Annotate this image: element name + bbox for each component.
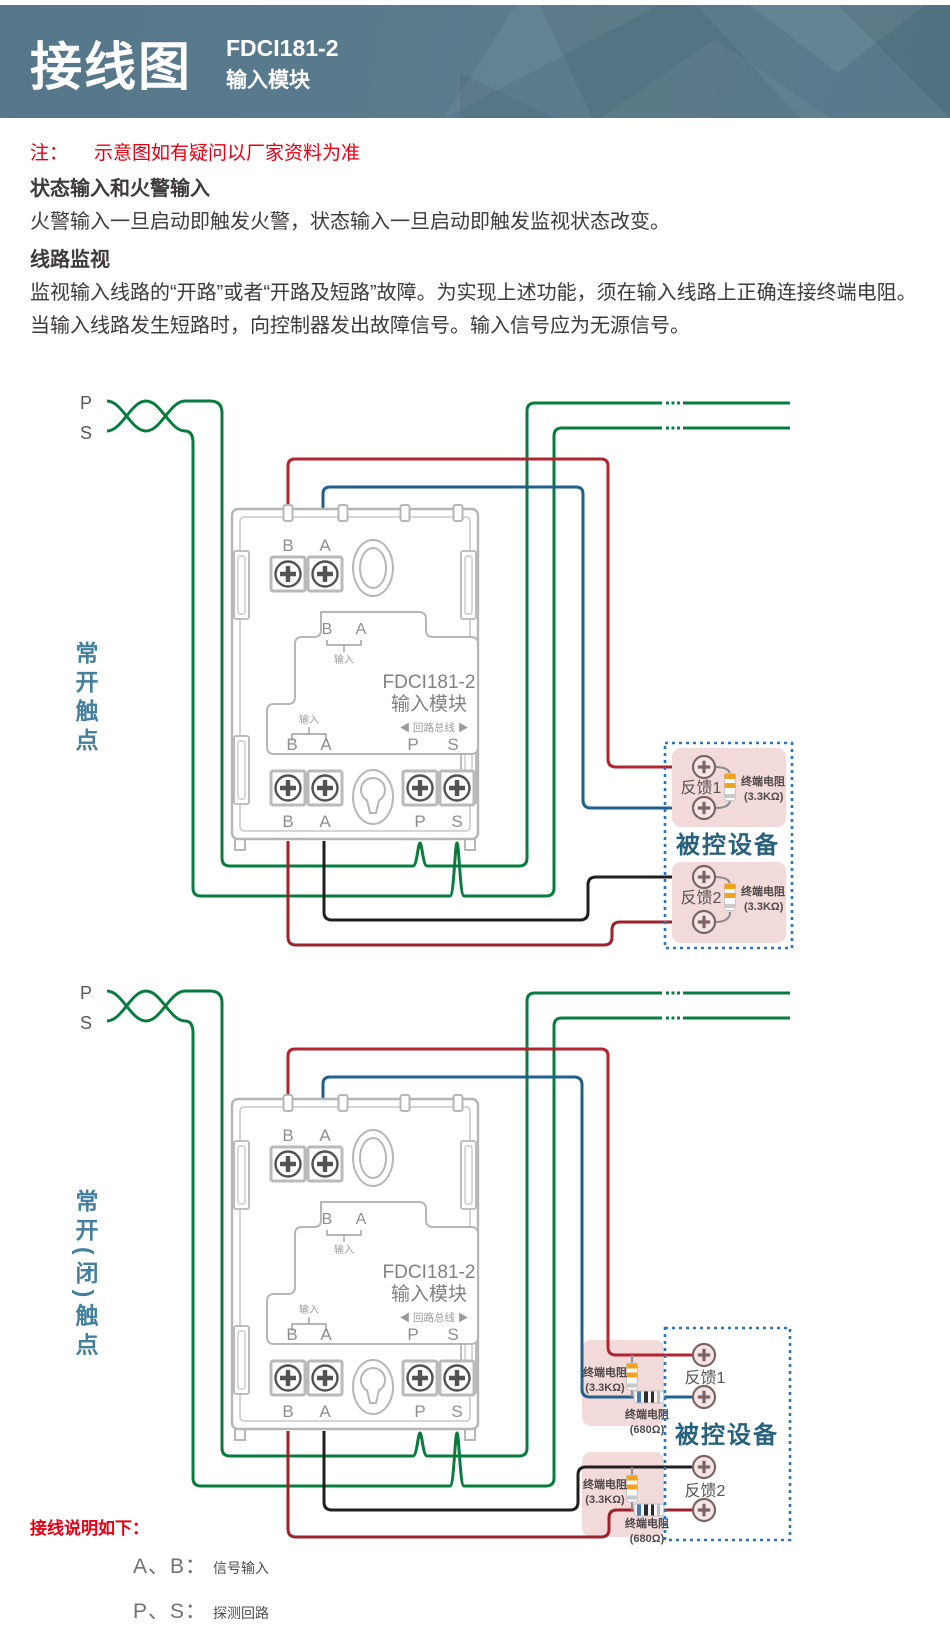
note-line: 注：示意图如有疑问以厂家资料为准 [30, 138, 360, 165]
note-text: 示意图如有疑问以厂家资料为准 [94, 143, 360, 164]
legend-title: 接线说明如下： [30, 1514, 149, 1539]
terminal-resistor-680-icon [634, 1504, 664, 1516]
controlled-device-title: 被控设备 [675, 1421, 779, 1449]
section-heading-2: 线路监视 [30, 243, 110, 272]
legend-term-ab: A、B： [133, 1555, 207, 1578]
resistor-label: 终端电阻 [741, 774, 785, 788]
feedback1-label: 反馈1 [685, 1369, 726, 1387]
wire-black-a-to-fb2 [324, 841, 692, 920]
page: 接线图 FDCI181-2 输入模块 注：示意图如有疑问以厂家资料为准 状态输入… [0, 0, 950, 1629]
feedback1-label: 反馈1 [681, 779, 722, 797]
resistor-value: (3.3KΩ) [585, 1382, 625, 1394]
fb1-terminal-bottom [693, 797, 715, 819]
feedback2-label: 反馈2 [681, 889, 722, 907]
terminal-resistor-680-icon [634, 1391, 664, 1403]
product-model: FDCI181-2 [226, 35, 338, 62]
fb2-terminal-top [693, 1456, 715, 1478]
wiring-diagram-canvas: B A B A P S B A 输入 FDCI181-2 输入模块 输入 B A… [0, 380, 950, 1629]
fb2-terminal-bottom [693, 911, 715, 933]
terminal-resistor-icon [627, 1363, 638, 1390]
legend-term-ps: P、S： [133, 1600, 207, 1623]
wire-maroon-b-to-fb2 [288, 841, 692, 945]
fb2-terminal-bottom [693, 1499, 715, 1521]
header-banner: 接线图 FDCI181-2 输入模块 [0, 5, 950, 118]
paragraph-1: 火警输入一旦启动即触发火警，状态输入一旦启动即触发监视状态改变。 [30, 206, 928, 239]
fb2-terminal-top [693, 866, 715, 888]
fb1-terminal-top [693, 1344, 715, 1366]
resistor-label: 终端电阻 [625, 1516, 669, 1530]
controlled-device-box-2: 反馈1 反馈2 被控设备 [665, 1328, 790, 1540]
resistor-value: (3.3KΩ) [744, 791, 784, 803]
paragraph-2: 监视输入线路的“开路”或者“开路及短路”故障。为实现上述功能，须在输入线路上正确… [30, 277, 928, 343]
note-label: 注： [30, 143, 68, 164]
legend-item-ab: A、B：信号输入 [133, 1550, 269, 1580]
fb1-terminal-bottom [693, 1386, 715, 1408]
legend-desc-ps: 探测回路 [213, 1605, 269, 1621]
resistor-value: (680Ω) [630, 1533, 665, 1545]
controlled-device-box-1: 反馈1 反馈2 终端电阻 (3.3KΩ) 终端电阻 (3.3KΩ) 被控设备 [665, 743, 792, 948]
controlled-device-title: 被控设备 [676, 831, 780, 859]
terminal-resistor-icon [725, 774, 736, 801]
wiring-diagram-2: 终端电阻 (3.3KΩ) 终端电阻 (680Ω) 终端电阻 (3.3KΩ) 终端… [80, 983, 790, 1545]
feedback2-label: 反馈2 [685, 1482, 726, 1500]
fb1-terminal-top [693, 756, 715, 778]
wiring-diagram-1: 反馈1 反馈2 终端电阻 (3.3KΩ) 终端电阻 (3.3KΩ) 被控设备 [80, 393, 792, 948]
resistor-value: (3.3KΩ) [744, 901, 784, 913]
section-heading-1: 状态输入和火警输入 [30, 172, 210, 201]
legend-item-ps: P、S：探测回路 [133, 1595, 269, 1625]
resistor-label: 终端电阻 [583, 1365, 627, 1379]
product-type: 输入模块 [226, 64, 310, 94]
resistor-label: 终端电阻 [625, 1407, 669, 1421]
resistor-label: 终端电阻 [741, 884, 785, 898]
resistor-value: (680Ω) [630, 1424, 665, 1436]
legend-desc-ab: 信号输入 [213, 1560, 269, 1576]
terminal-resistor-icon [627, 1475, 638, 1502]
page-title: 接线图 [30, 25, 192, 100]
resistor-label: 终端电阻 [583, 1477, 627, 1491]
terminal-resistor-icon [725, 884, 736, 911]
resistor-value: (3.3KΩ) [585, 1494, 625, 1506]
